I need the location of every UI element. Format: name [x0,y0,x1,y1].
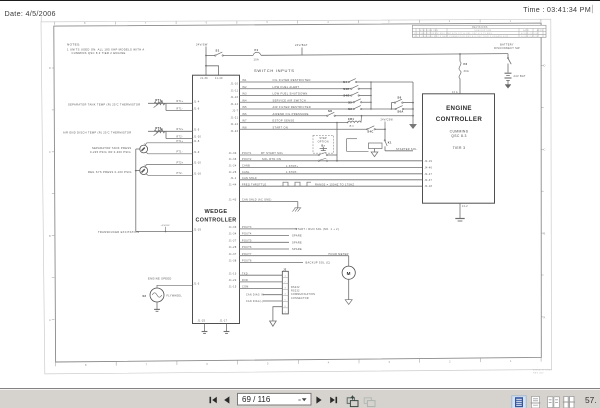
svg-text:4/3/06 CW CW: 4/3/06 CW CW [521,33,539,35]
svg-text:1 2 C346-857 REV E REV PER: 1 2 C346-857 REV E REV PER ECN 127 H REL… [414,33,492,35]
svg-text:J4-47: J4-47 [425,173,433,176]
svg-text:24V/CSW: 24V/CSW [381,119,394,121]
svg-text:3: 3 [285,287,287,289]
svg-text:DATE: DATE [523,29,530,32]
svg-text:SWITCH INPUTS: SWITCH INPUTS [254,68,295,73]
svg-text:J4-18: J4-18 [425,185,433,188]
svg-text:2: 2 [285,281,287,283]
svg-text:CR1: CR1 [348,117,354,121]
svg-text:SPARE: SPARE [292,235,302,238]
svg-text:DESCRIPTION: DESCRIPTION [475,30,492,32]
svg-text:S5: S5 [348,100,352,104]
svg-text:RT1+: RT1+ [177,101,184,103]
svg-text:A: A [49,318,51,322]
svg-text:STARTER SOL: STARTER SOL [396,148,417,151]
svg-text:PT1-: PT1- [177,152,183,154]
svg-text:PT2-: PT2- [177,173,183,175]
svg-text:OPTION: OPTION [318,140,329,143]
svg-text:RT START SOL: RT START SOL [261,151,284,155]
svg-text:J1-4: J1-4 [194,100,200,103]
svg-text:6: 6 [206,362,208,366]
svg-text:02250-177-R04: 02250-177-R04 [533,370,552,372]
svg-text:J1-1: J1-1 [230,177,236,180]
svg-text:2: 2 [449,360,451,364]
svg-text:10A: 10A [254,59,260,62]
svg-text:4: 4 [285,294,287,296]
svg-text:4: 4 [328,361,330,365]
svg-text:2: 2 [449,19,451,23]
svg-text:8: 8 [84,21,86,25]
svg-text:8: 8 [85,363,87,367]
svg-text:S8: S8 [328,109,332,113]
svg-text:D: D [49,66,51,70]
svg-text:57.: 57. [585,395,597,405]
svg-text:02: 02 [143,294,147,298]
svg-text:J1-30: J1-30 [200,77,208,80]
svg-text:PT2+: PT2+ [177,162,184,164]
svg-text:4: 4 [327,20,329,24]
svg-text:RT1-: RT1- [177,108,183,110]
svg-text:F1: F1 [255,48,259,52]
svg-text:APPR: APPR [537,29,544,32]
svg-text:J1-16: J1-16 [194,172,202,175]
svg-text:FLYWHEEL: FLYWHEEL [167,295,183,298]
svg-text:J1-20: J1-20 [194,136,202,139]
svg-text:J1-21: J1-21 [231,116,239,119]
svg-text:J-STOP-: J-STOP- [286,171,298,174]
svg-text:CAN DIAG(-): CAN DIAG(-) [246,300,263,303]
svg-text:SPARE: SPARE [292,241,302,244]
svg-text:B: B [49,234,51,238]
svg-text:30A: 30A [464,70,470,73]
svg-text:J1-11: J1-11 [231,89,239,92]
svg-text:CAN DIAG IN: CAN DIAG IN [246,294,264,297]
svg-text:J1-6: J1-6 [194,108,200,111]
svg-text:J1-12: J1-12 [231,123,239,126]
svg-text:AIR END DISCH TEMP (R) 25'C: AIR END DISCH TEMP (R) 25'C THERMISTOR [63,130,132,134]
svg-text:J1-10: J1-10 [231,83,239,86]
svg-text:J1-3: J1-3 [194,282,200,285]
svg-text:24V/SW: 24V/SW [196,43,208,47]
svg-text:J2: J2 [283,268,287,271]
svg-text:J1-5: J1-5 [194,128,200,131]
svg-text:1: 1 [510,359,512,363]
svg-text:ENGINE SPEED: ENGINE SPEED [148,277,172,281]
svg-text:B: B [544,231,546,235]
svg-text:C: C [543,147,545,151]
svg-text:7: 7 [146,362,148,366]
svg-text:J1-33: J1-33 [229,226,237,229]
svg-text:RXD: RXD [242,279,248,282]
svg-text:J1-16: J1-16 [231,96,239,99]
svg-text:REG SYS PRESS 0-100 PSIG: REG SYS PRESS 0-100 PSIG [88,170,132,174]
svg-text:SOL RTN ON: SOL RTN ON [262,157,281,161]
svg-text:RT2-: RT2- [177,136,183,138]
svg-text:J1-43: J1-43 [229,199,237,202]
svg-text:RS232: RS232 [291,287,300,289]
svg-text:(A1): (A1) [349,124,354,127]
svg-text:J1-7: J1-7 [232,110,238,113]
svg-text:TRANSDUCER EXCITATION: TRANSDUCER EXCITATION [98,230,139,234]
svg-text:5: 5 [266,20,268,24]
svg-text:CONTROLLER: CONTROLLER [436,116,483,123]
svg-text:S6: S6 [397,96,401,100]
svg-text:+5V/8V: +5V/8V [161,225,171,227]
svg-text:PT1+: PT1+ [177,141,184,143]
svg-text:SEPARATOR TANK PRESS: SEPARATOR TANK PRESS [92,146,131,150]
svg-text:1 UNITS USED ON: ALL 185 XHP: 1 UNITS USED ON: ALL 185 XHP MODELS WITH… [67,47,145,51]
svg-text:J1-14: J1-14 [231,103,239,106]
svg-text:TIER 3: TIER 3 [453,146,466,150]
svg-text:CONTROLLER: CONTROLLER [196,217,237,223]
svg-text:J4-19: J4-19 [425,160,433,163]
svg-text:J1-22: J1-22 [229,279,237,282]
svg-text:POUT1: POUT1 [242,152,252,155]
svg-text:REVISIONS: REVISIONS [472,27,488,29]
svg-text:SPARE: SPARE [292,248,302,251]
svg-text:SYM ZONE REV: SYM ZONE REV [420,30,439,32]
svg-text:5: 5 [267,361,269,365]
svg-text:D: D [543,64,545,68]
svg-text:TXD: TXD [242,272,248,275]
svg-text:WEDGE: WEDGE [205,209,228,215]
svg-text:J1-8: J1-8 [194,140,200,143]
svg-text:CAN SHLD: CAN SHLD [242,177,257,180]
svg-text:FREQ THROTTLE: FREQ THROTTLE [242,183,266,186]
svg-text:DISCONNECT SW: DISCONNECT SW [494,47,520,50]
svg-text:J1-37: J1-37 [229,253,237,256]
svg-text:C/L 3 C346-860 REV F NEW CON: C/L 3 C346-860 REV F NEW CONNECTOR REV 8… [414,35,509,38]
svg-text:J1-15: J1-15 [229,286,237,289]
svg-text:S4C: S4C [343,87,350,91]
svg-text:J1-10: J1-10 [194,162,202,165]
svg-text:0-225 PSIG OR 0-300 PSIG: 0-225 PSIG OR 0-300 PSIG [90,150,131,154]
svg-text:COMMUNICATION: COMMUNICATION [291,293,315,296]
svg-text:A: A [544,315,546,319]
svg-text:C: C [49,150,51,154]
svg-text:POUT2: POUT2 [242,158,252,161]
svg-text:J1-34: J1-34 [229,233,237,236]
svg-text:J4-2: J4-2 [462,206,468,208]
svg-text:BATTERY: BATTERY [500,43,514,46]
svg-text:3: 3 [388,19,390,23]
svg-text:5: 5 [285,300,287,302]
svg-text:S1: S1 [216,49,220,53]
svg-text:QSC 8.3: QSC 8.3 [451,134,466,138]
svg-text:S4: S4 [343,80,347,84]
svg-text:CUMMINS QSC 8.3 TIER 2 ENGINE: CUMMINS QSC 8.3 TIER 2 ENGINE [72,51,126,55]
svg-text:J1-44: J1-44 [229,183,237,186]
svg-text:J1-25: J1-25 [198,320,206,323]
svg-text:COM: COM [242,286,249,289]
svg-text:6: 6 [206,20,208,24]
svg-text:CONNECTOR: CONNECTOR [291,298,309,300]
svg-text:S4C: S4C [367,130,373,134]
svg-text:M: M [347,271,351,276]
svg-text:J1-27: J1-27 [229,239,237,242]
svg-text:SEPARATOR TANK TEMP (R) 25'C: SEPARATOR TANK TEMP (R) 25'C THERMISTOR [68,102,141,106]
svg-text:RS232: RS232 [291,291,300,293]
svg-text:24V BAT: 24V BAT [514,75,526,78]
svg-text:6: 6 [285,306,287,308]
svg-text:J1-24: J1-24 [229,165,237,168]
svg-text:HOUR METER: HOUR METER [329,253,349,256]
svg-text:K1: K1 [388,142,392,145]
svg-text:S6A: S6A [397,110,403,114]
svg-text:J1-38: J1-38 [229,260,237,263]
svg-text:S4E: S4E [343,94,349,98]
svg-text:1: 1 [285,275,287,277]
svg-text:BACKUP SOL (C): BACKUP SOL (C) [306,262,331,265]
svg-text:7: 7 [145,21,147,25]
svg-text:J1-17: J1-17 [220,320,228,323]
svg-text:RANGE = 150HZ TO 175HZ: RANGE = 150HZ TO 175HZ [315,183,354,186]
svg-text:J1-13: J1-13 [229,272,237,275]
svg-text:J1-9: J1-9 [194,151,200,154]
svg-text:J1-36: J1-36 [229,158,237,161]
svg-text:J4-37: J4-37 [425,179,433,182]
svg-text:ENGINE: ENGINE [446,105,472,112]
svg-text:START ON: START ON [273,125,289,129]
svg-text:J1-28: J1-28 [229,246,237,249]
svg-text:J1-26: J1-26 [229,171,237,174]
svg-text:69 / 116: 69 / 116 [242,395,271,404]
svg-text:J1-40: J1-40 [215,77,223,80]
svg-text:J4-46: J4-46 [425,167,433,170]
svg-text:S3: S3 [348,107,352,111]
svg-text:J-STOP+: J-STOP+ [286,165,299,168]
svg-text:REV 002: REV 002 [533,372,544,374]
svg-text:J1-23: J1-23 [231,130,239,133]
svg-text:NOTES:: NOTES: [67,42,81,46]
svg-text:24V/BAT: 24V/BAT [295,43,308,47]
svg-text:J1-30: J1-30 [229,152,237,155]
svg-text:CANL: CANL [242,171,250,174]
svg-text:3: 3 [388,360,390,364]
svg-text:F2: F2 [464,62,468,66]
svg-text:4/4/06 CW CW: 4/4/06 CW CW [521,36,539,38]
svg-text:J1-19: J1-19 [194,229,202,232]
svg-text:1: 1 [510,19,512,23]
svg-text:CUMMINS: CUMMINS [450,129,469,133]
svg-text:CAN SHLD (AC GND): CAN SHLD (AC GND) [242,199,272,202]
svg-text:RT2+: RT2+ [177,129,184,131]
svg-text:CANB: CANB [242,165,250,168]
svg-text:START / RUN SOL (NO. 1 + 2): START / RUN SOL (NO. 1 + 2) [296,228,340,231]
